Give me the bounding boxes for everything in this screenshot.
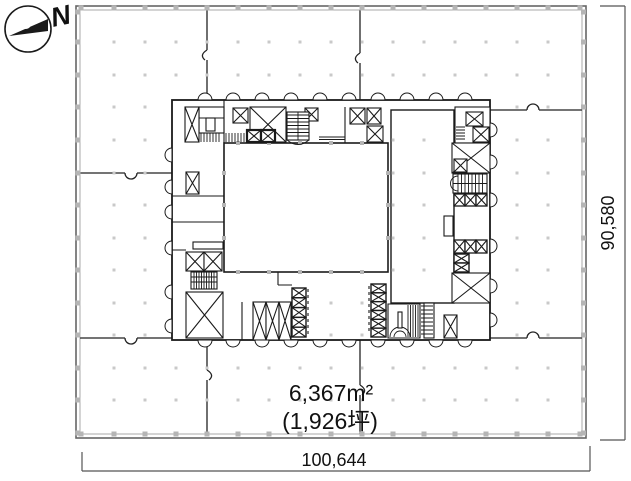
- floor-plan: N 100,644 90,580 6,367m² (1,926坪): [0, 0, 631, 481]
- north-arrow-notch: [21, 19, 31, 29]
- area-labels: 6,367m² (1,926坪): [282, 380, 378, 434]
- north-label: N: [48, 0, 74, 33]
- area-label-tsubo: (1,926坪): [282, 408, 378, 434]
- floor-plan-page: N 100,644 90,580 6,367m² (1,926坪): [0, 0, 631, 481]
- north-arrow-icon: N: [5, 0, 74, 52]
- area-label-m2: 6,367m²: [289, 380, 374, 406]
- width-dimension-label: 100,644: [301, 450, 366, 470]
- core-center-court: [224, 143, 388, 272]
- height-dimension-label: 90,580: [598, 195, 618, 250]
